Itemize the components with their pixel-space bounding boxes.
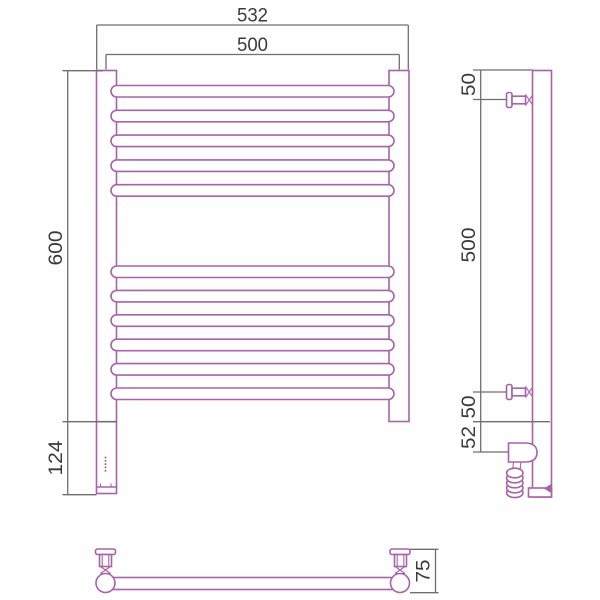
front-view: 532 500 600 124 (46, 6, 409, 495)
bottom-dimensions: 75 (410, 549, 439, 592)
bottom-rung (110, 578, 396, 590)
rung (111, 339, 394, 351)
bottom-view: 75 (96, 549, 439, 593)
dim-label-532: 532 (237, 6, 268, 27)
bottom-bracket-left-icon (96, 549, 116, 574)
dim-label-50-top: 50 (459, 73, 480, 96)
dim-label-600: 600 (46, 231, 67, 266)
rung (111, 364, 394, 376)
dim-label-75: 75 (414, 560, 435, 583)
technical-drawing: 532 500 600 124 (0, 0, 600, 600)
rung (111, 86, 394, 98)
rung (111, 388, 394, 400)
tube-cross-section-right (391, 574, 410, 593)
rung (111, 110, 394, 122)
dim-label-50-bottom: 50 (459, 396, 480, 419)
tube-cross-section-left (96, 574, 115, 593)
wall-bracket-bottom-icon (507, 385, 533, 400)
bottom-bracket-right-icon (390, 549, 410, 574)
power-cable-coil-icon (507, 468, 523, 497)
towel-rail-drawing: 532 500 600 124 (0, 0, 600, 600)
rungs (111, 86, 394, 400)
left-tube (97, 71, 117, 494)
rung (111, 135, 394, 147)
wall-bracket-top-icon (507, 93, 533, 108)
rung (111, 315, 394, 327)
rung (111, 160, 394, 172)
dim-label-500-side: 500 (459, 228, 480, 263)
side-tube (533, 71, 552, 498)
side-view: 50 500 50 52 (459, 70, 552, 498)
rung (111, 185, 394, 197)
dim-label-52: 52 (459, 426, 480, 449)
rung (111, 290, 394, 302)
dim-label-124: 124 (46, 440, 67, 475)
rung (111, 266, 394, 278)
dim-label-500: 500 (237, 35, 268, 56)
